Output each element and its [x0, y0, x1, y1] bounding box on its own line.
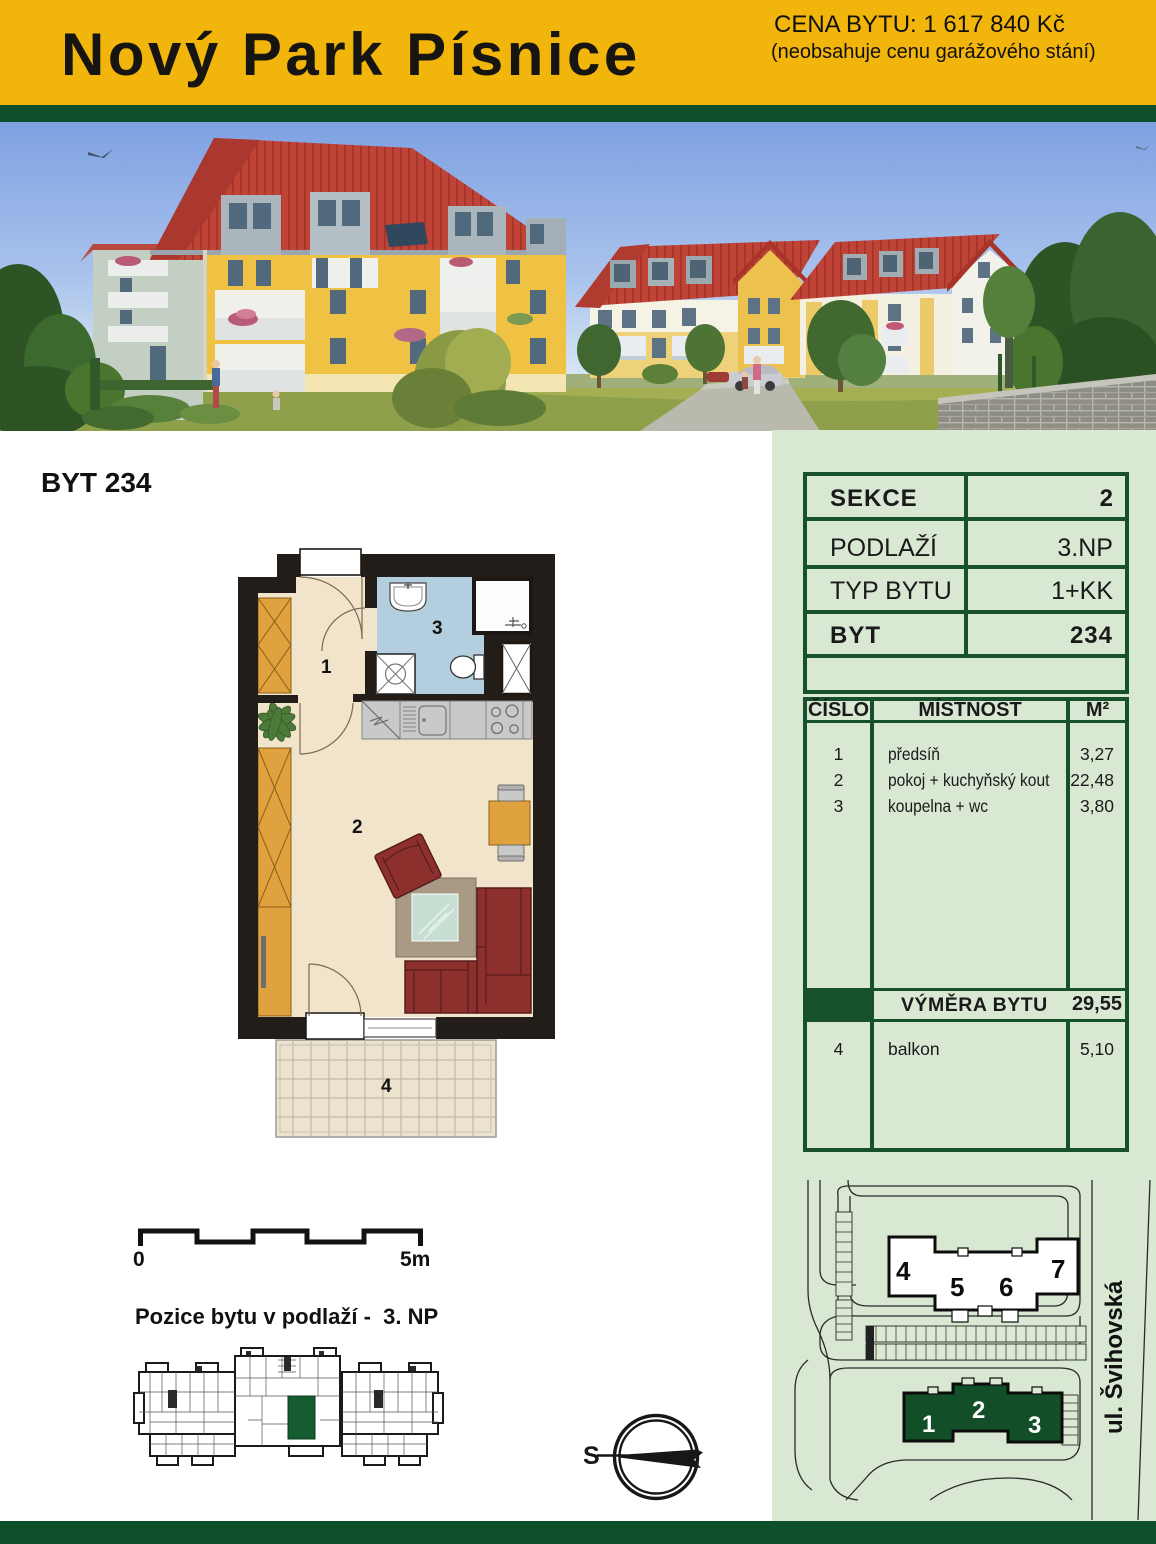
- svg-text:S: S: [583, 1442, 600, 1470]
- svg-text:2: 2: [352, 817, 363, 838]
- svg-text:1: 1: [922, 1411, 935, 1438]
- svg-text:6: 6: [999, 1272, 1013, 1302]
- svg-text:4: 4: [381, 1076, 392, 1097]
- svg-text:3: 3: [1028, 1412, 1041, 1439]
- svg-text:7: 7: [1051, 1254, 1065, 1284]
- svg-text:5m: 5m: [400, 1248, 430, 1271]
- svg-text:0: 0: [133, 1248, 145, 1271]
- svg-text:4: 4: [896, 1256, 911, 1286]
- svg-text:ul. Švihovská: ul. Švihovská: [1100, 1280, 1128, 1434]
- svg-text:2: 2: [972, 1397, 985, 1424]
- svg-text:3: 3: [432, 618, 443, 639]
- svg-text:5: 5: [950, 1272, 964, 1302]
- svg-text:1: 1: [321, 657, 332, 678]
